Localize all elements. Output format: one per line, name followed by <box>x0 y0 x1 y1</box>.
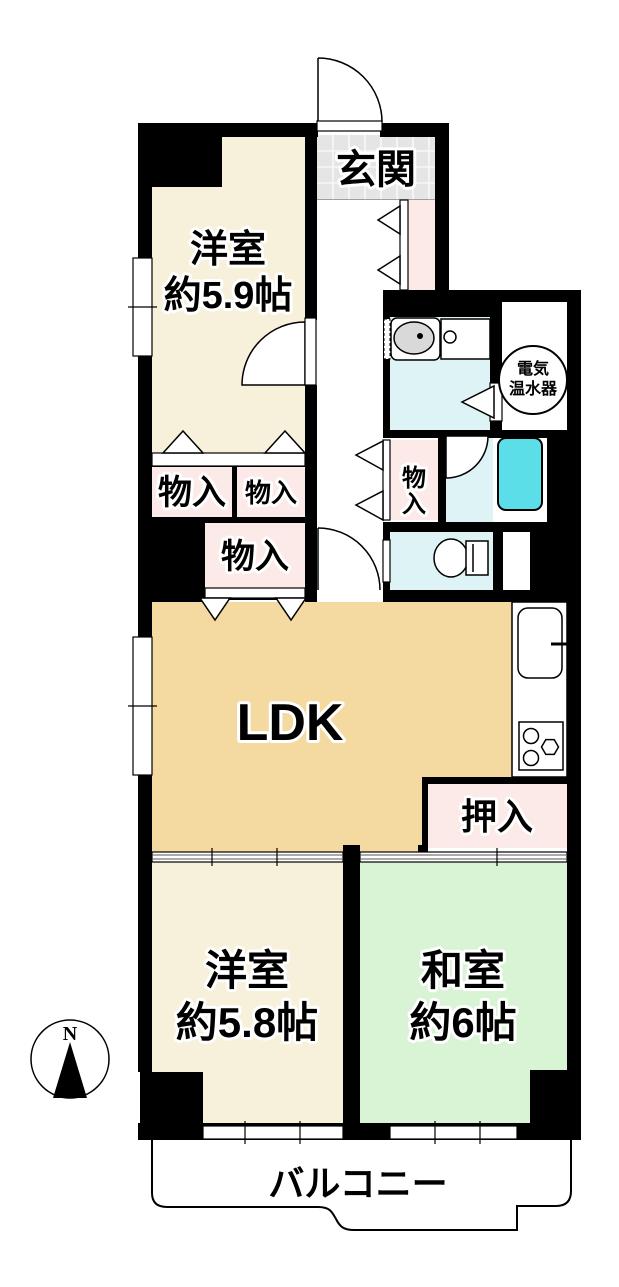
wall-segment <box>383 522 567 532</box>
storage-4-door <box>383 440 390 520</box>
floor-plan-page: N 玄関 洋室 約5.9帖 物入 物入 物入 物 入 電気 温水器 LDK 押入… <box>0 0 619 1287</box>
balcony-label: バルコニー <box>268 1163 447 1204</box>
bathtub <box>498 438 542 510</box>
entrance-door <box>317 58 382 131</box>
wall-segment <box>138 775 152 1072</box>
storage-4-label-char2: 入 <box>402 491 426 518</box>
wall-segment <box>138 123 318 137</box>
storage-4-label-char1: 物 <box>402 465 426 492</box>
wall-segment <box>567 290 581 1140</box>
storage-1-label: 物入 <box>158 474 226 512</box>
wall-segment <box>138 590 205 602</box>
western-room-1-label: 洋室 <box>190 228 266 271</box>
entrance-closet-door <box>400 200 408 290</box>
water-heater-circle <box>499 346 567 414</box>
japanese-room-size: 約6帖 <box>409 999 516 1046</box>
wall-segment <box>438 438 446 522</box>
storage-2-label: 物入 <box>245 478 297 508</box>
wall-pillar <box>530 1070 580 1127</box>
wall-segment <box>530 532 567 590</box>
wall-segment <box>422 777 428 852</box>
western-room-1-size: 約5.9帖 <box>164 275 293 317</box>
floor-plan-drawing: N 玄関 洋室 約5.9帖 物入 物入 物入 物 入 電気 温水器 LDK 押入… <box>0 0 619 1287</box>
storage-3-label: 物入 <box>221 538 289 576</box>
closet-door-band-top <box>152 453 305 466</box>
wall-divider <box>343 845 360 1140</box>
wall-segment <box>138 137 152 258</box>
closet-door-band-bottom <box>205 588 305 598</box>
wall-segment <box>422 777 567 784</box>
toilet <box>434 539 488 577</box>
wall-segment <box>305 137 317 320</box>
entrance-label: 玄関 <box>336 148 416 192</box>
japanese-room-label: 和室 <box>421 947 505 994</box>
western-room-2-size: 約5.8帖 <box>176 999 318 1046</box>
washbasin <box>384 318 440 360</box>
western-room-2-label: 洋室 <box>205 947 289 994</box>
wall-segment <box>383 590 567 602</box>
kitchen-stove <box>519 722 563 770</box>
wall-segment <box>547 430 567 522</box>
wall-segment <box>493 532 503 590</box>
entrance-closet <box>408 200 435 290</box>
compass-north-label: N <box>63 1023 78 1045</box>
oshiire-label: 押入 <box>461 796 533 837</box>
wall-segment <box>435 123 449 304</box>
toilet-door <box>383 540 390 582</box>
hallway <box>317 200 383 602</box>
washing-machine-pan <box>441 319 490 359</box>
water-heater-label-line2: 温水器 <box>508 379 558 398</box>
water-heater-label-line1: 電気 <box>517 359 549 378</box>
ldk-label: LDK <box>237 694 344 752</box>
wall-segment <box>305 590 317 602</box>
compass: N <box>31 1020 109 1098</box>
